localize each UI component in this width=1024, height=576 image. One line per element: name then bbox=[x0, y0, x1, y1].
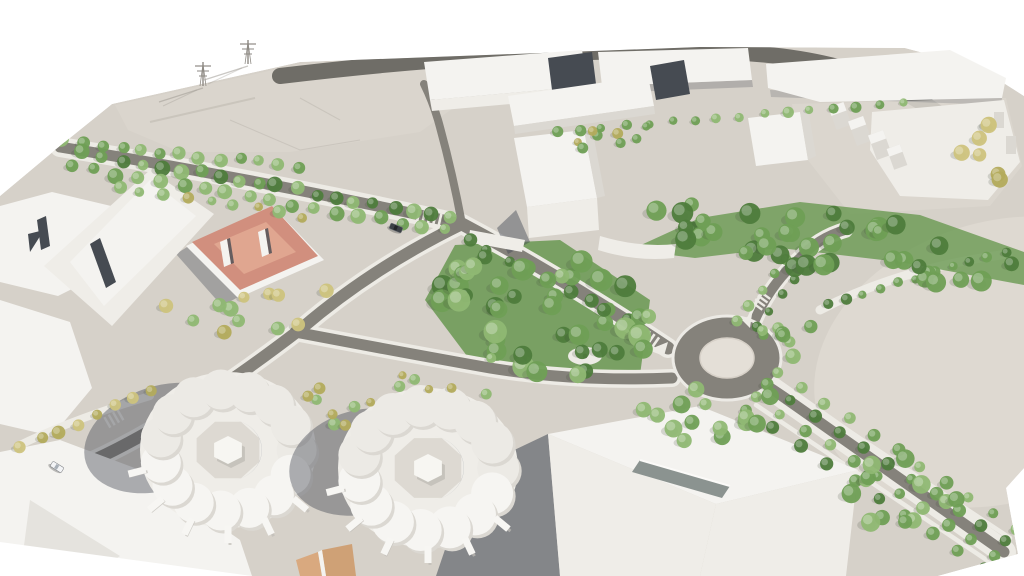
masterplan-rendering bbox=[0, 0, 1024, 576]
